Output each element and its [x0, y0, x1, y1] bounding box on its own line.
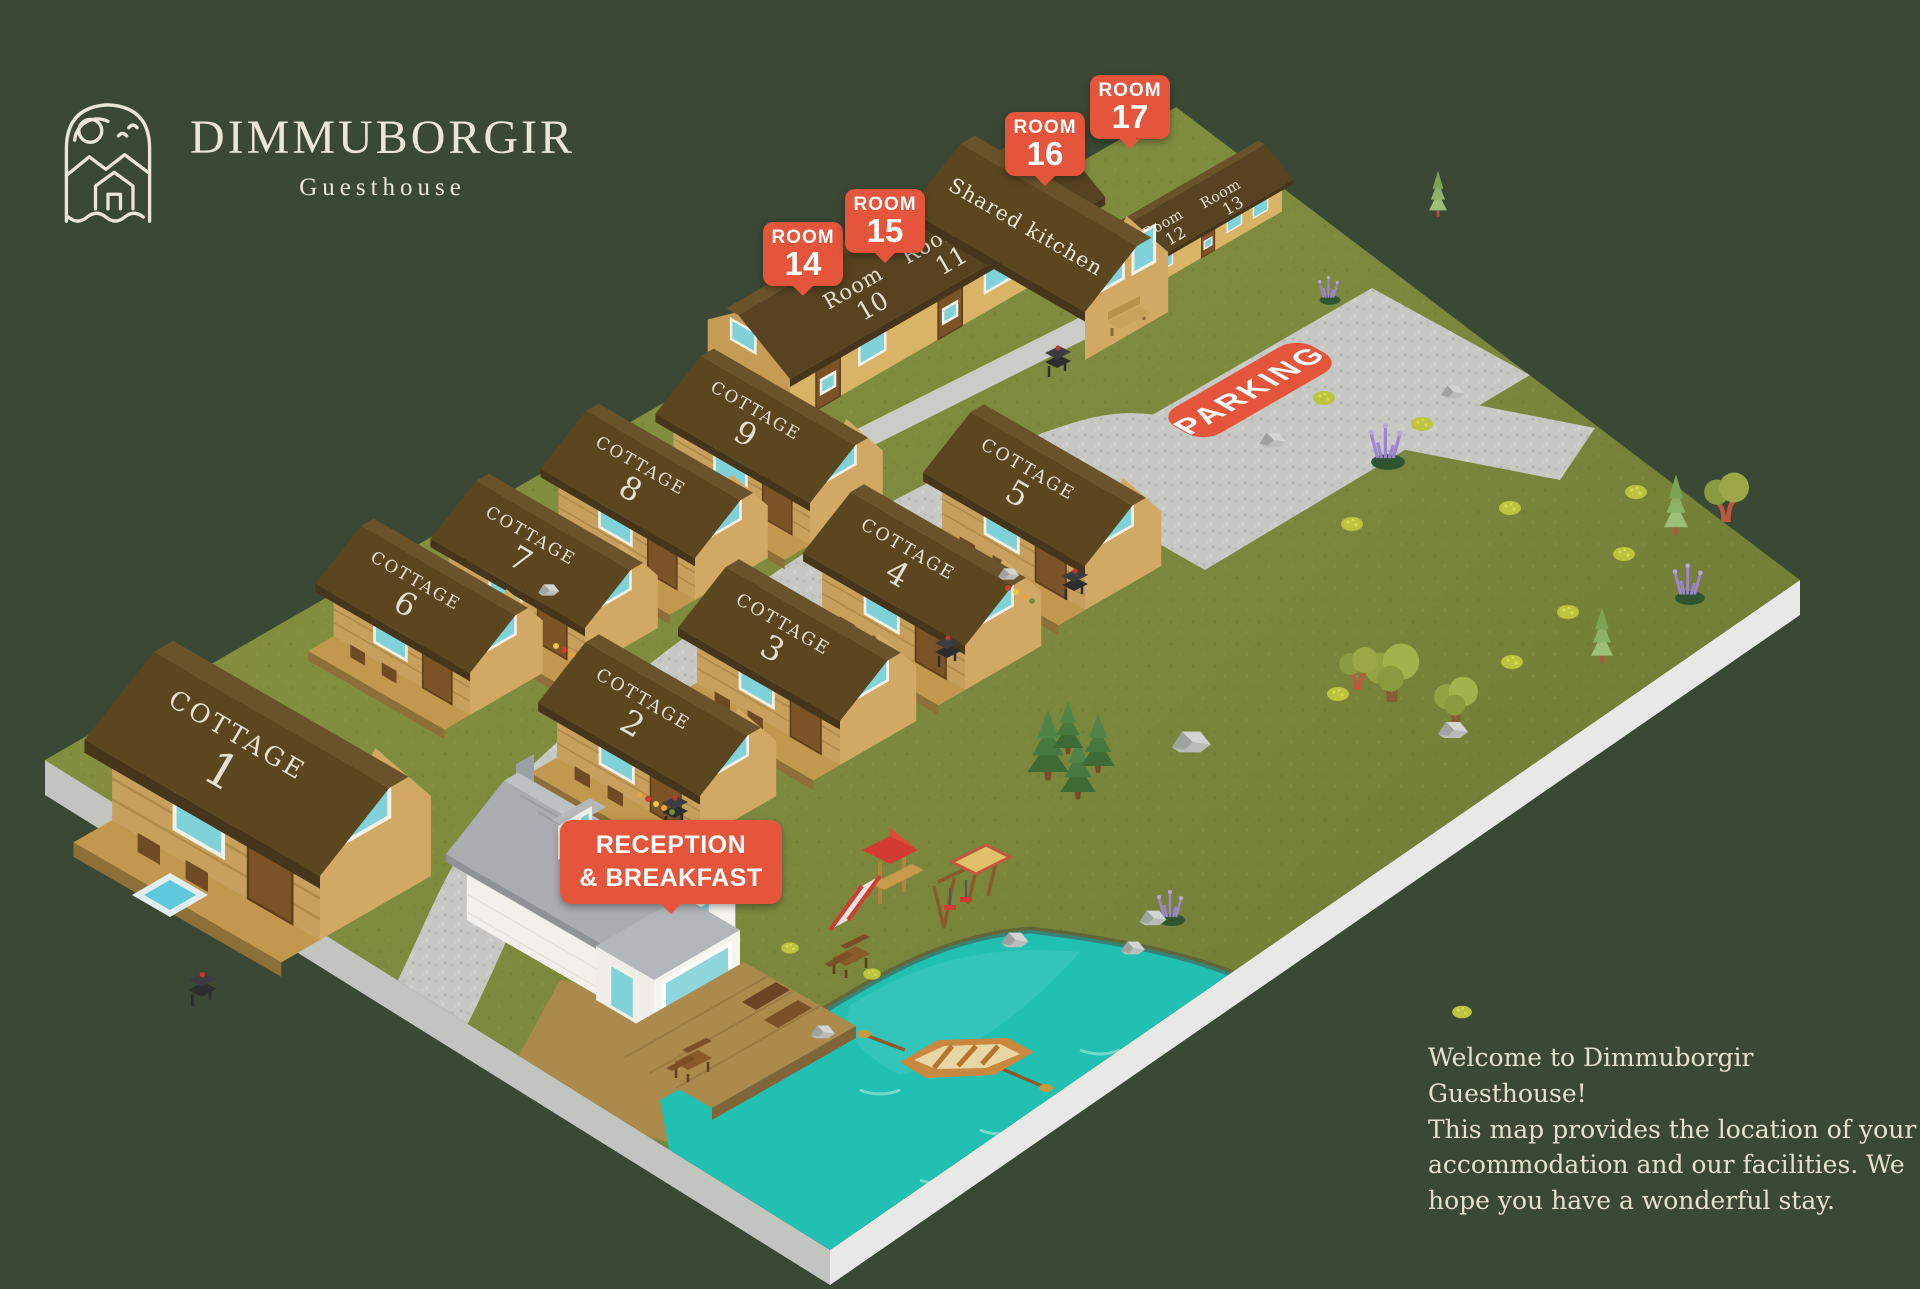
- pin-reception-line2: & BREAKFAST: [560, 862, 782, 895]
- pin-reception: RECEPTION & BREAKFAST: [560, 820, 782, 904]
- logo-icon: [56, 92, 160, 232]
- pin-reception-line1: RECEPTION: [560, 829, 782, 862]
- pin-room-15-num: 15: [845, 214, 925, 248]
- logo-subtitle: Guesthouse: [190, 174, 575, 202]
- pin-room-16: ROOM 16: [1005, 112, 1085, 176]
- pin-room-15: ROOM 15: [845, 189, 925, 253]
- welcome-text: Welcome to Dimmuborgir Guesthouse! This …: [1428, 1040, 1918, 1219]
- logo: DIMMUBORGIR Guesthouse: [56, 92, 575, 232]
- logo-title: DIMMUBORGIR: [190, 114, 575, 162]
- pin-room-17-num: 17: [1090, 100, 1170, 134]
- pin-room-14: ROOM 14: [763, 222, 843, 286]
- pin-room-14-num: 14: [763, 247, 843, 281]
- pin-room-17: ROOM 17: [1090, 75, 1170, 139]
- pin-room-16-num: 16: [1005, 137, 1085, 171]
- guesthouse-map-poster: PARKING Room 12 Room 13 Room 10 Room 11 …: [0, 0, 1920, 1289]
